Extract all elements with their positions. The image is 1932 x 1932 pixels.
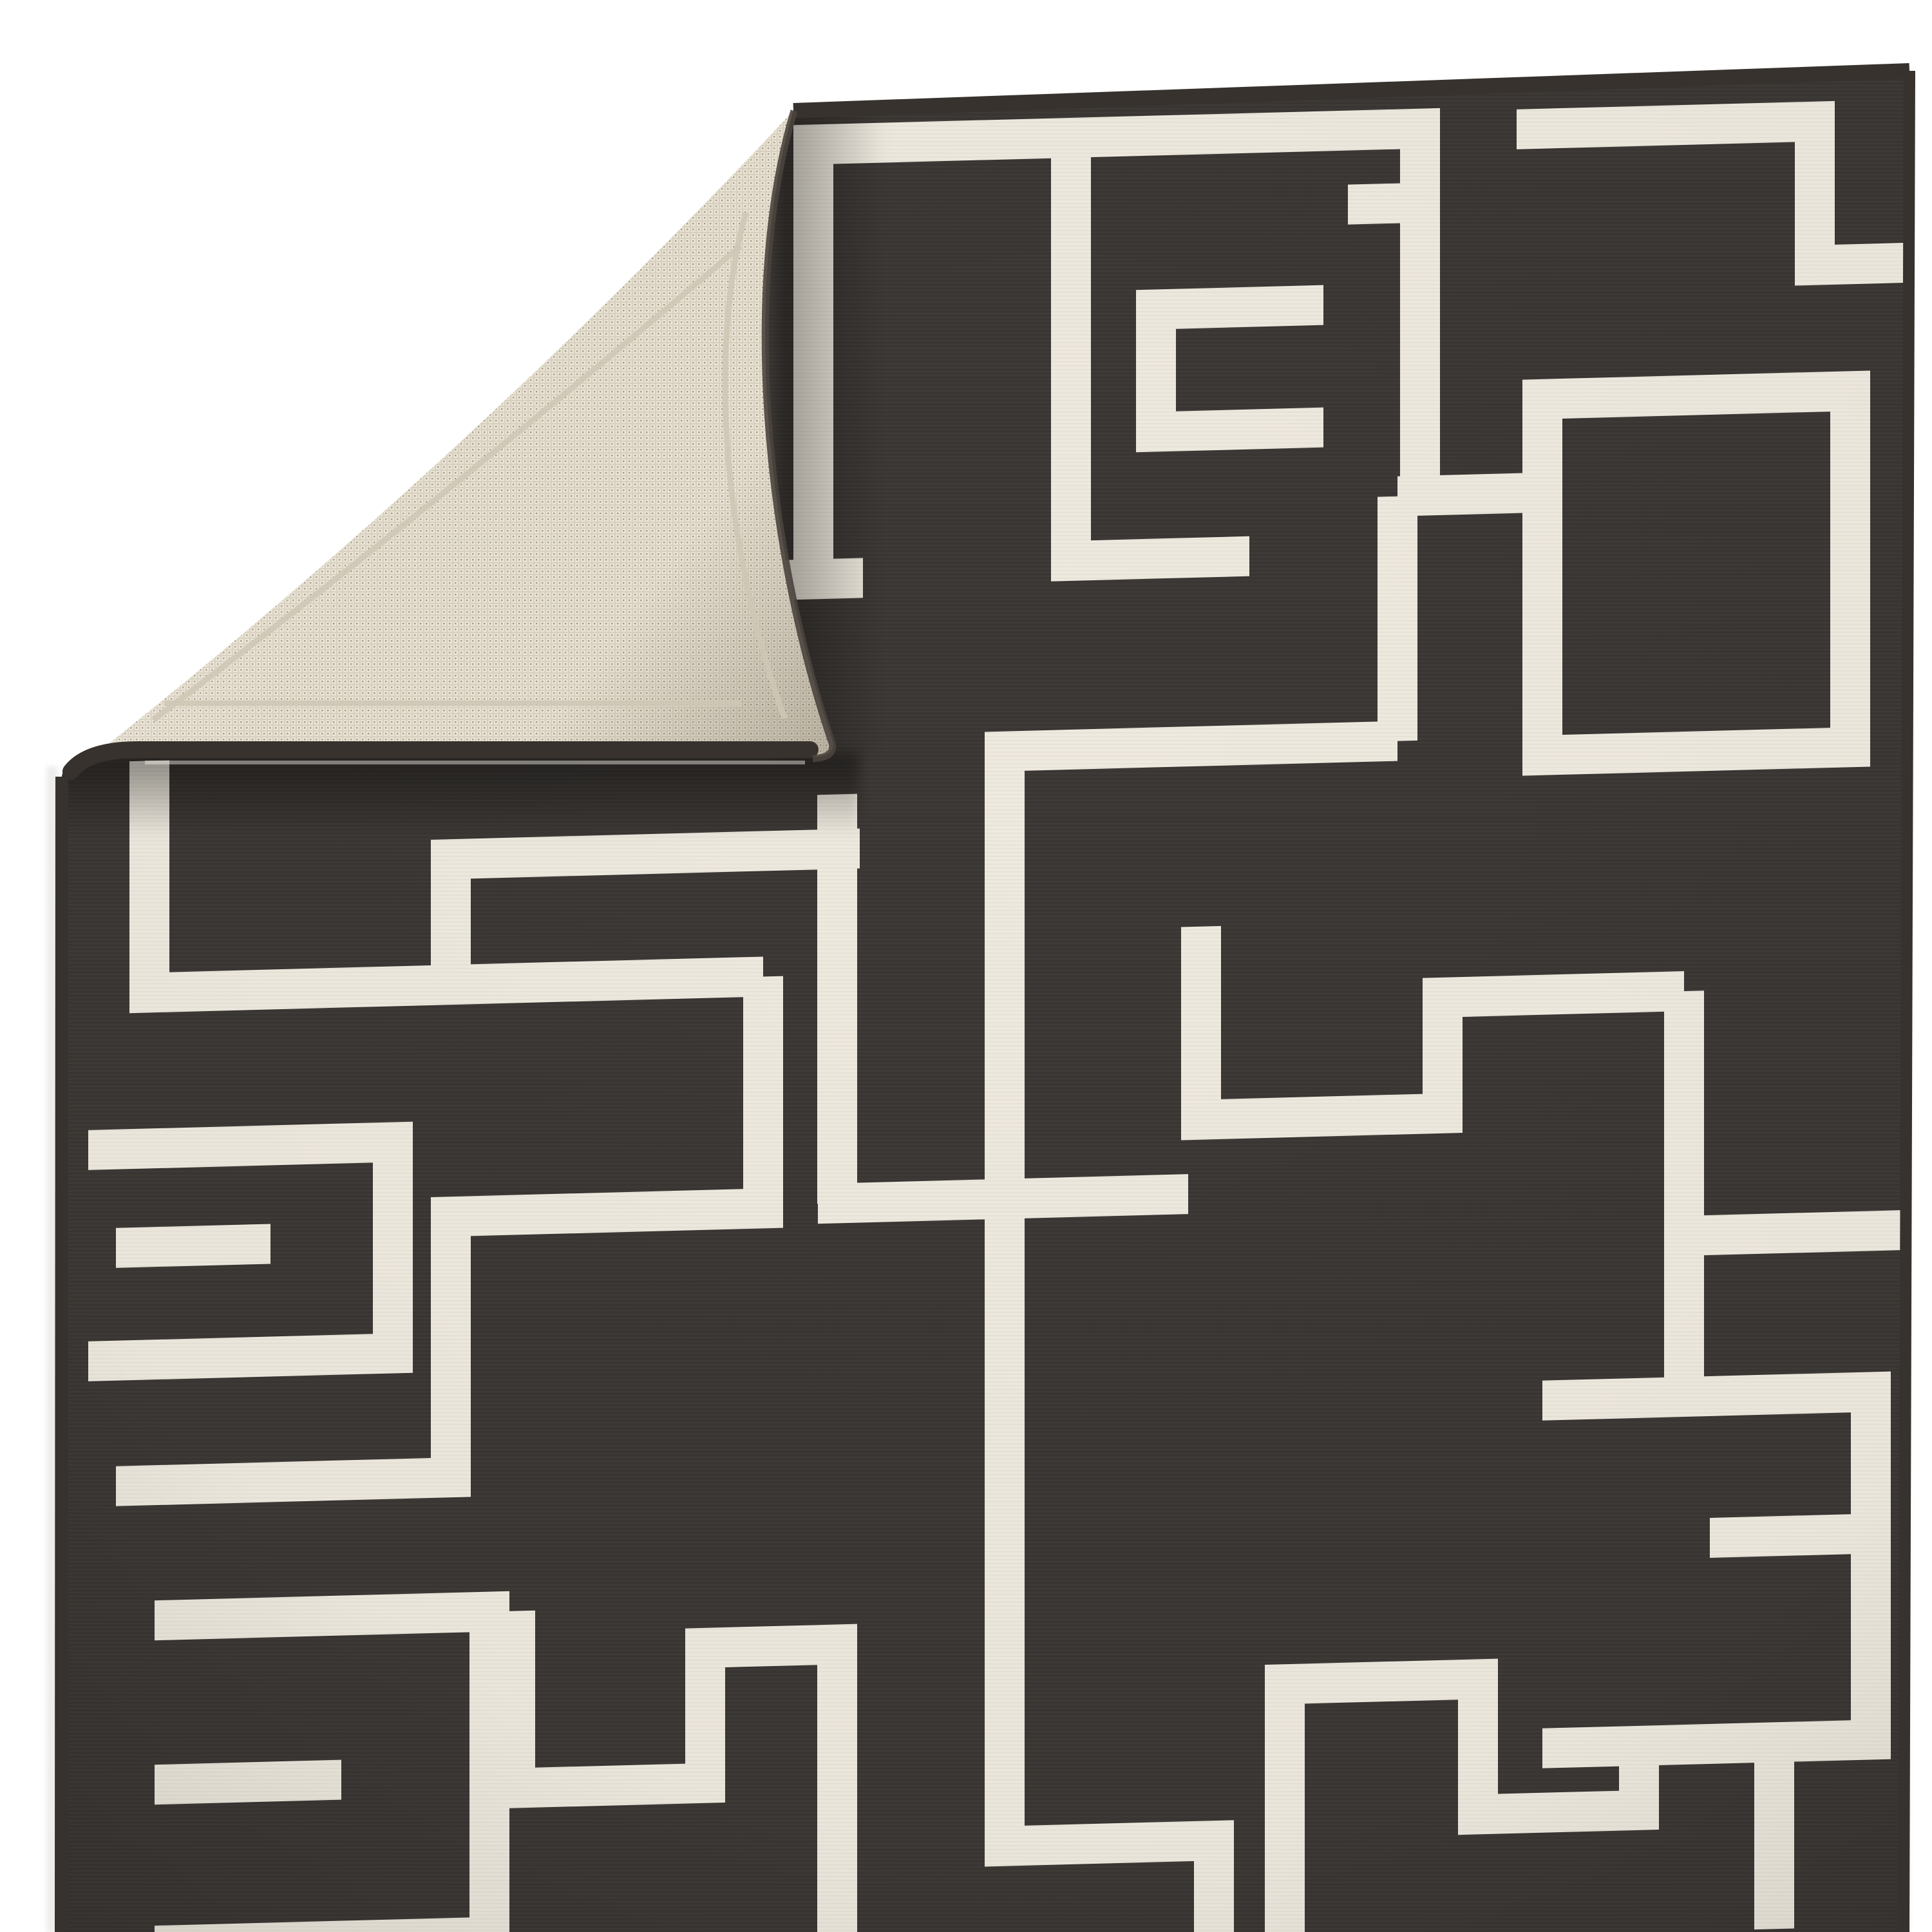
flap-cast-shadow-bottom [61, 753, 860, 837]
rug-edge-binding-right [1904, 71, 1909, 1932]
rug-edge-binding-left [61, 777, 62, 1932]
product-photo [0, 0, 1932, 1932]
rug-photo-canvas [0, 0, 1932, 1932]
